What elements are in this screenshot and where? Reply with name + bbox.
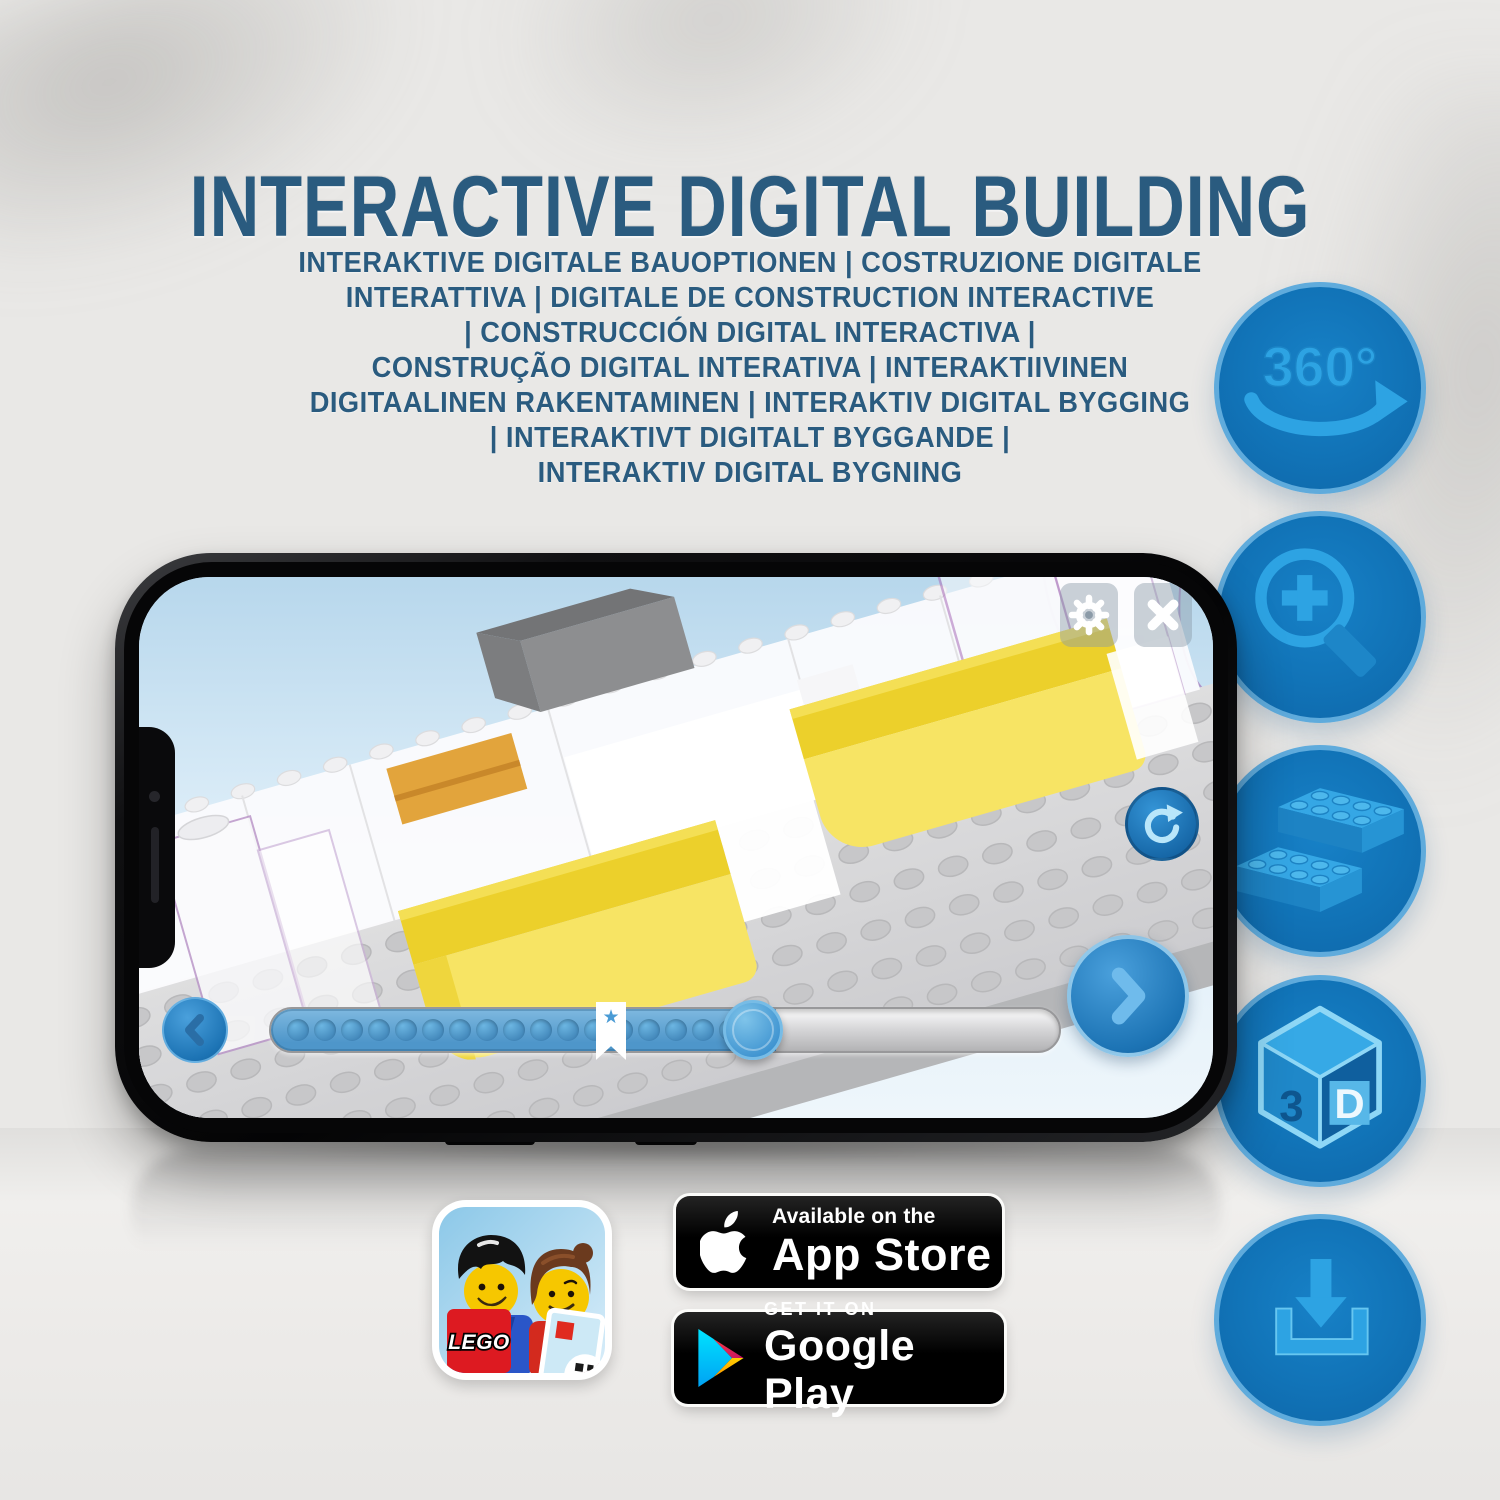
apple-logo-icon — [700, 1211, 752, 1273]
lego-app-icon[interactable]: LEGO — [432, 1200, 612, 1380]
lego-logo-text: LEGO — [448, 1331, 510, 1354]
bookmark-marker[interactable]: ★ — [596, 1002, 626, 1060]
reset-view-button[interactable] — [1125, 787, 1199, 861]
zoom-in-magnifier-icon — [1219, 516, 1421, 718]
3d-cube-icon: 3 D — [1219, 980, 1421, 1182]
build-progress-bar[interactable]: ★ — [269, 1007, 1061, 1053]
progress-dots — [287, 1019, 741, 1041]
instruction-card — [539, 1310, 605, 1373]
close-button[interactable] — [1134, 583, 1192, 647]
feature-3d-view: 3 D — [1214, 975, 1426, 1187]
previous-step-button[interactable] — [162, 997, 228, 1063]
google-play-name: Google Play — [764, 1322, 1004, 1418]
front-camera — [149, 791, 160, 802]
lego-app-artwork: LEGO — [439, 1207, 605, 1373]
google-play-tagline: GET IT ON — [764, 1298, 1004, 1320]
feature-360-rotation: 360° — [1214, 282, 1426, 494]
chevron-left-icon — [180, 1013, 210, 1047]
google-play-badge[interactable]: GET IT ON Google Play — [674, 1312, 1004, 1404]
360-rotation-icon: 360° — [1219, 287, 1421, 489]
app-store-name: App Store — [772, 1231, 992, 1279]
feature-zoom — [1214, 511, 1426, 723]
close-icon — [1144, 596, 1182, 634]
phone-notch — [139, 727, 175, 968]
settings-button[interactable] — [1060, 583, 1118, 647]
next-step-button[interactable] — [1067, 935, 1189, 1057]
subtitle-line: INTERAKTIVE DIGITALE BAUOPTIONEN | COSTR… — [45, 246, 1455, 281]
phone-screen: ★ — [139, 577, 1213, 1118]
google-play-icon — [698, 1329, 744, 1387]
feature-download — [1214, 1214, 1426, 1426]
cube-right-label: D — [1334, 1080, 1364, 1127]
progress-thumb[interactable] — [723, 1000, 783, 1060]
page-title: INTERACTIVE DIGITAL BUILDING — [150, 158, 1350, 257]
cube-left-label: 3 — [1279, 1082, 1303, 1131]
feature-bricks — [1214, 745, 1426, 957]
app-store-badge[interactable]: Available on the App Store — [676, 1196, 1002, 1288]
bookmark-star-icon: ★ — [602, 1002, 619, 1060]
reset-view-icon — [1137, 799, 1187, 849]
lego-bricks-icon — [1219, 750, 1421, 952]
360-label: 360° — [1263, 336, 1377, 398]
download-icon — [1219, 1219, 1421, 1421]
lego-logo: LEGO — [447, 1309, 511, 1373]
earpiece-speaker — [151, 827, 159, 903]
gear-icon — [1068, 594, 1110, 636]
progress-fill — [271, 1009, 776, 1051]
phone-mockup: ★ — [115, 553, 1237, 1142]
app-store-tagline: Available on the — [772, 1205, 992, 1229]
chevron-right-icon — [1103, 967, 1153, 1025]
